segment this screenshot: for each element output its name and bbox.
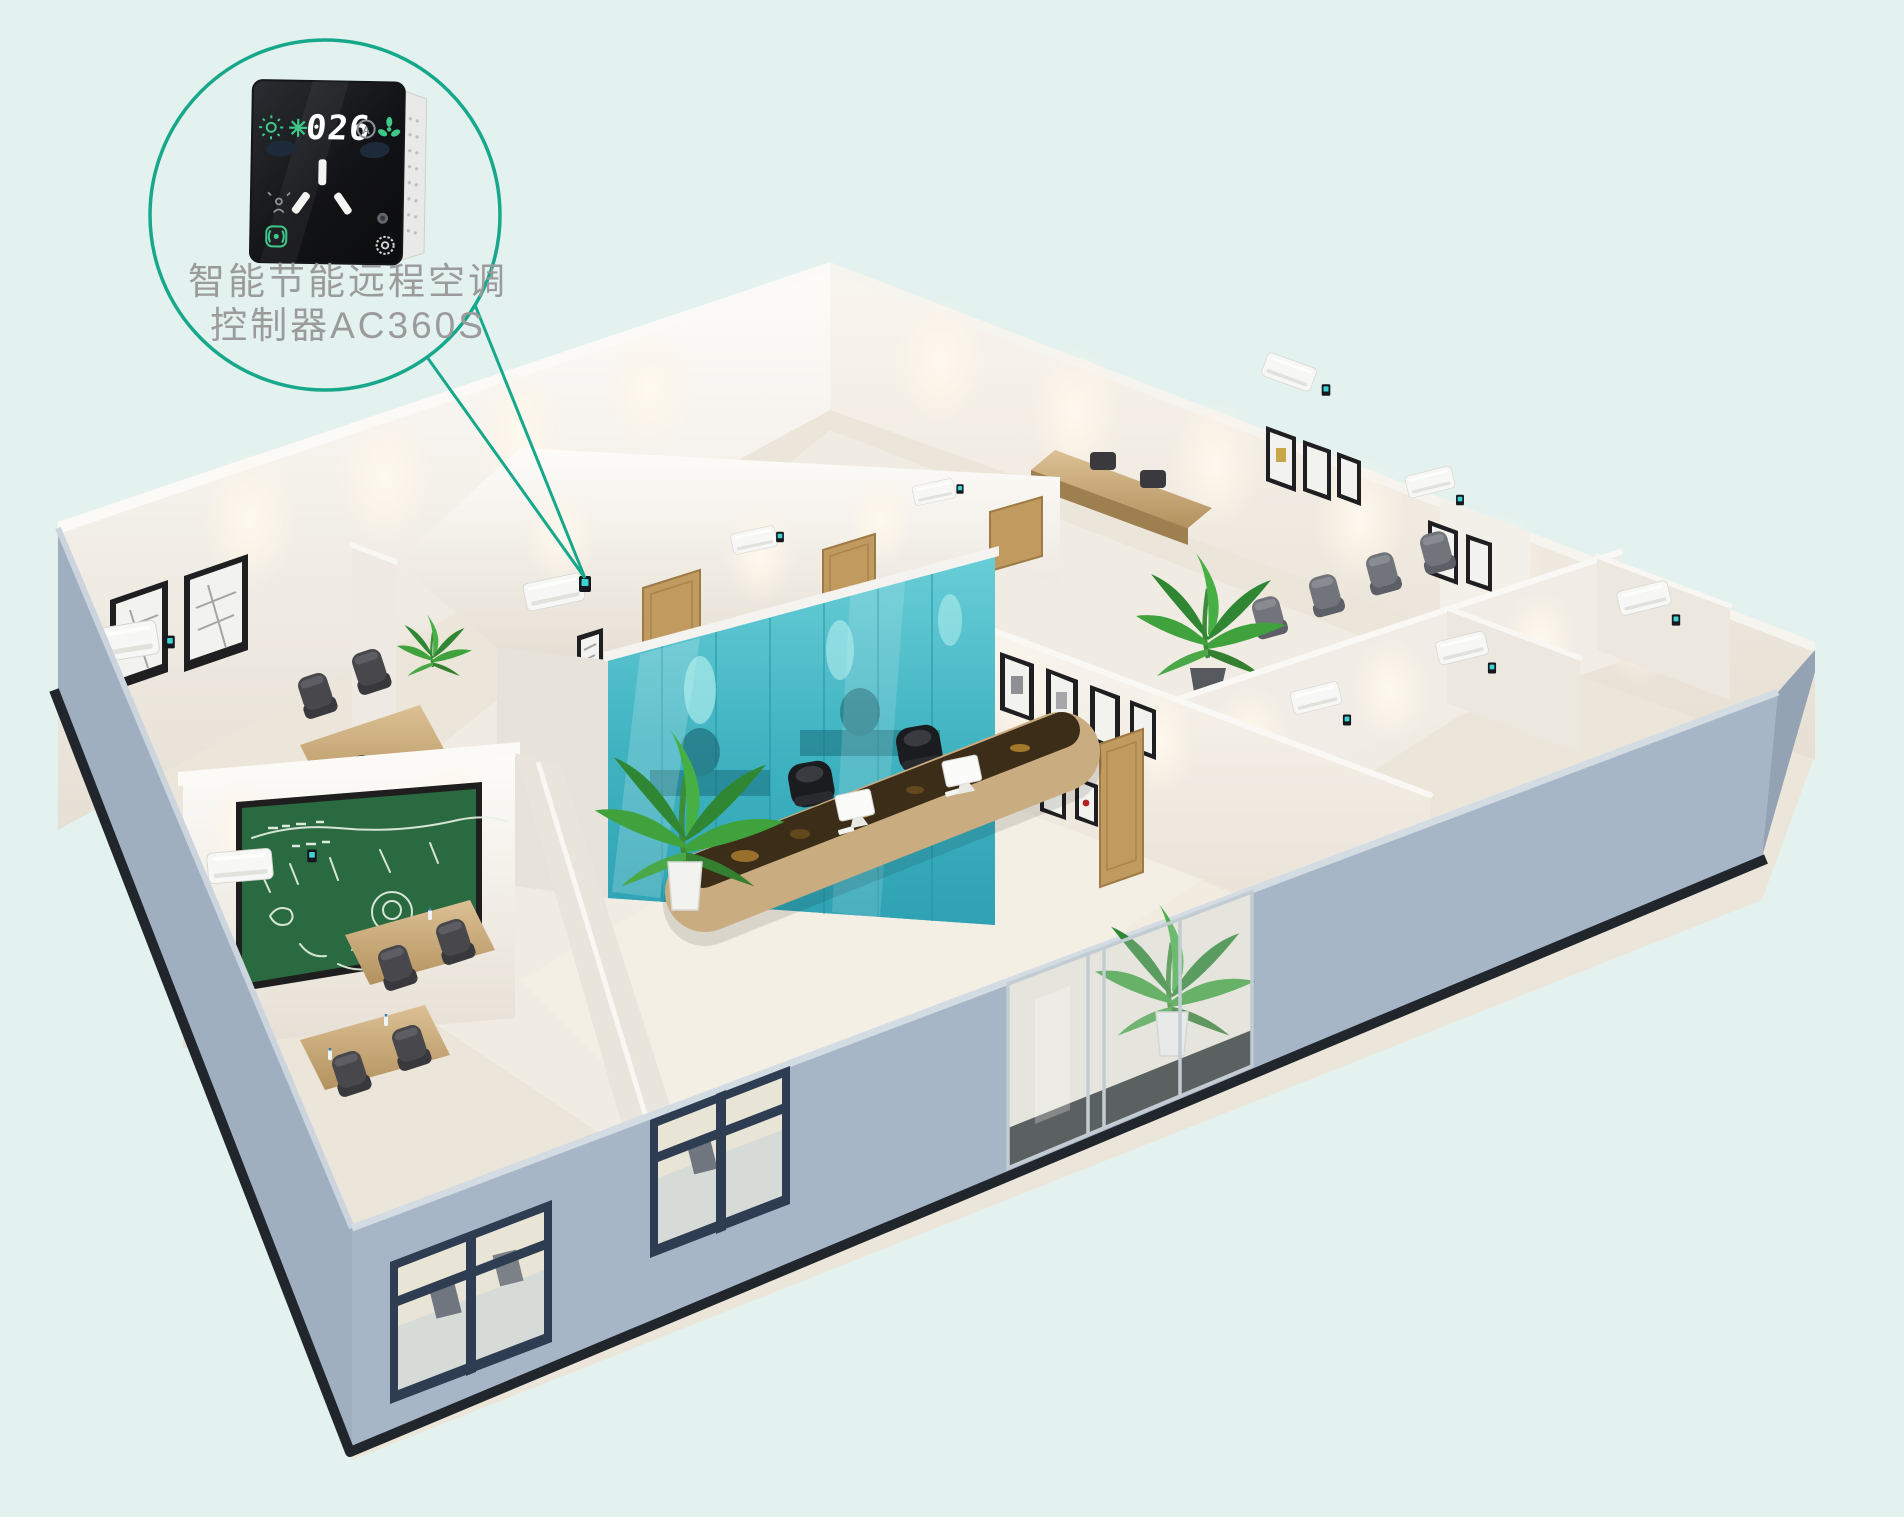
downlight-glow: [1350, 636, 1430, 744]
ac-controller: [165, 636, 175, 649]
picture-frame: [1303, 440, 1331, 501]
picture-frame: [1337, 452, 1361, 506]
glass-reflection: [1035, 986, 1070, 1124]
plant-pot: [668, 862, 702, 910]
svg-text:A: A: [362, 125, 370, 137]
frame-art: [1276, 448, 1286, 462]
downlight-glow: [894, 296, 986, 428]
picture-frame: [1266, 426, 1296, 492]
ac-controller: [1488, 663, 1496, 674]
window-mullion: [716, 1090, 726, 1234]
downlight-glow: [606, 328, 694, 452]
chair-back: [1090, 452, 1116, 470]
frame-art: [1011, 676, 1023, 694]
ac-unit: [206, 848, 273, 884]
picture-frame: [1000, 652, 1034, 722]
ac-controller: [1322, 384, 1331, 396]
downlight-glow: [337, 408, 433, 548]
ac-controller-highlighted: [579, 576, 591, 592]
wine-art: [1083, 800, 1090, 807]
callout-label-line2: 控制器AC360S: [210, 305, 486, 346]
ac-controller: [1456, 495, 1464, 506]
chair-back: [1140, 470, 1166, 488]
ac-controller: [1672, 614, 1680, 625]
picture-frame: [1466, 534, 1492, 592]
ac-controller-device: 026 A: [250, 80, 427, 265]
wood-door-tall: [1100, 729, 1143, 887]
downlight-glow: [524, 485, 596, 585]
frame-art: [1056, 692, 1067, 709]
ac-controller: [307, 850, 317, 863]
ac-controller: [956, 484, 963, 494]
downlight-glow: [724, 505, 796, 605]
isometric-office-scene: 026 A: [0, 0, 1904, 1517]
window-mullion: [466, 1232, 476, 1376]
callout-label-line1: 智能节能远程空调: [188, 261, 508, 302]
product-illustration: 026 A: [0, 0, 1904, 1517]
ac-controller: [1343, 715, 1351, 726]
ac-controller: [776, 532, 784, 542]
